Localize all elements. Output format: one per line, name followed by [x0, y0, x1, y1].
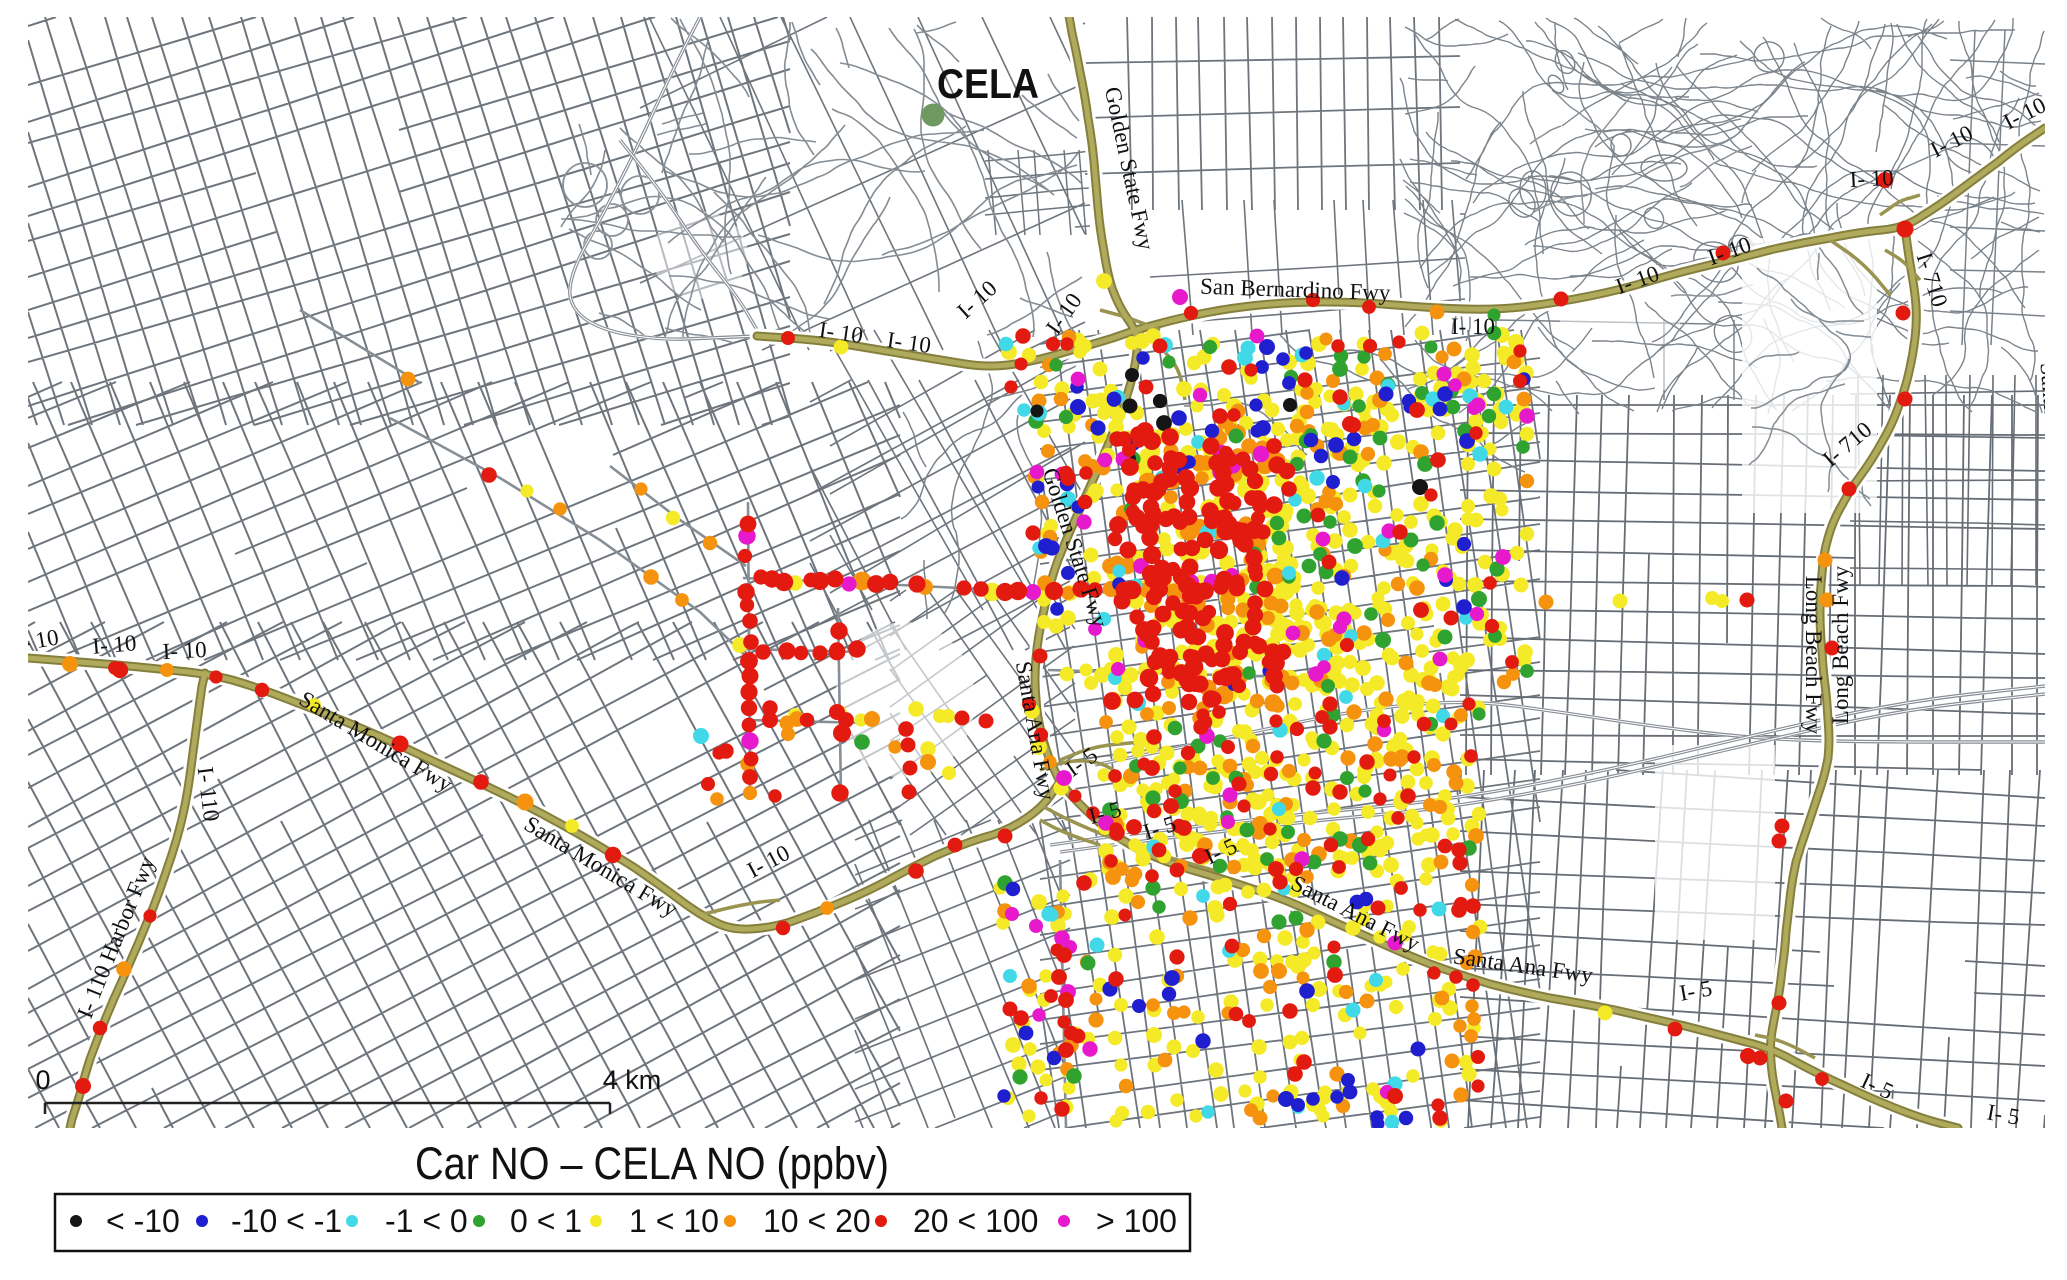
- svg-text:> 100: > 100: [1096, 1203, 1177, 1239]
- svg-text:-10 < -1: -10 < -1: [231, 1203, 342, 1239]
- svg-text:I- 10: I- 10: [162, 637, 207, 664]
- svg-text:I- 10: I- 10: [91, 630, 137, 659]
- svg-text:Car NO – CELA NO (ppbv): Car NO – CELA NO (ppbv): [415, 1138, 889, 1189]
- svg-text:Long Beach Fwy: Long Beach Fwy: [1801, 576, 1826, 735]
- svg-text:1 < 10: 1 < 10: [629, 1203, 719, 1239]
- svg-text:20 < 100: 20 < 100: [913, 1203, 1038, 1239]
- svg-text:Long Beach Fwy: Long Beach Fwy: [1828, 565, 1853, 724]
- svg-text:< -10: < -10: [106, 1203, 180, 1239]
- svg-text:0 < 1: 0 < 1: [510, 1203, 582, 1239]
- svg-text:0: 0: [35, 1065, 50, 1095]
- svg-text:10 < 20: 10 < 20: [763, 1203, 871, 1239]
- svg-text:CELA: CELA: [937, 60, 1039, 107]
- svg-text:I- 10: I- 10: [1849, 165, 1894, 192]
- svg-text:I- 10: I- 10: [1451, 314, 1495, 339]
- svg-text:-1 < 0: -1 < 0: [385, 1203, 468, 1239]
- svg-text:4 km: 4 km: [603, 1065, 662, 1095]
